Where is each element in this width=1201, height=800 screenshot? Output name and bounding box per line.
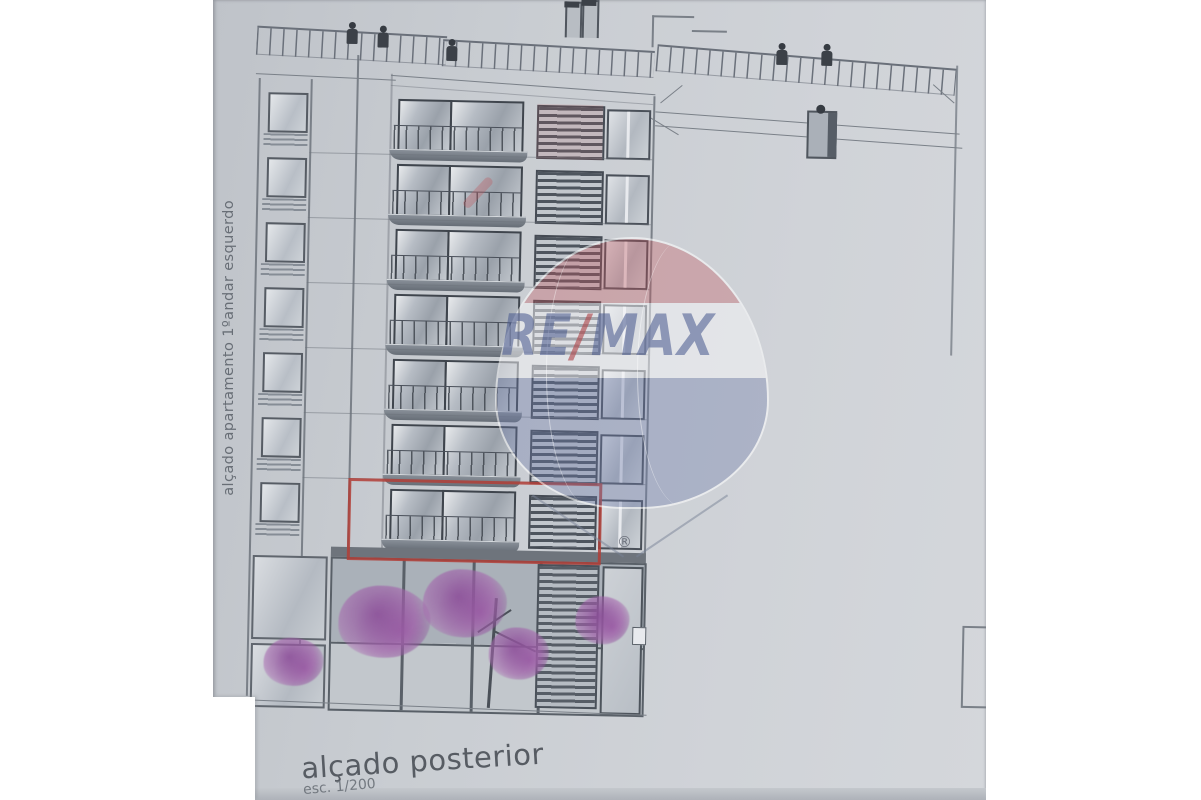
balloon-red-band <box>497 239 767 303</box>
paper-corner-cut <box>213 697 255 800</box>
edge-balcony-outline <box>961 626 986 709</box>
watermark-fragment <box>536 104 603 160</box>
remax-slash: / <box>572 303 590 369</box>
vegetation-cluster <box>422 569 507 639</box>
vegetation-cluster <box>338 585 431 659</box>
remax-wordmark: RE/MAX <box>495 303 722 369</box>
vegetation-cluster <box>263 637 324 686</box>
photo-of-elevation-drawing: RE/MAX ® alçado apartamento 1ºandar esqu… <box>0 0 1201 800</box>
remax-max: MAX <box>591 303 715 369</box>
balloon-gore-line <box>637 239 730 507</box>
side-annotation-text: alçado apartamento 1ºandar esquerdo <box>221 200 237 496</box>
vegetation-cluster <box>488 627 549 680</box>
vegetation-cluster <box>575 596 630 645</box>
registered-mark: ® <box>617 533 632 551</box>
remax-balloon-watermark: RE/MAX ® <box>495 237 765 567</box>
drawing-sheet: RE/MAX ® alçado apartamento 1ºandar esqu… <box>213 0 986 800</box>
balloon-envelope <box>495 237 769 509</box>
remax-re: RE <box>501 303 572 369</box>
balloon-gore-line <box>546 239 639 507</box>
side-annotation: alçado apartamento 1ºandar esquerdo <box>221 200 247 545</box>
